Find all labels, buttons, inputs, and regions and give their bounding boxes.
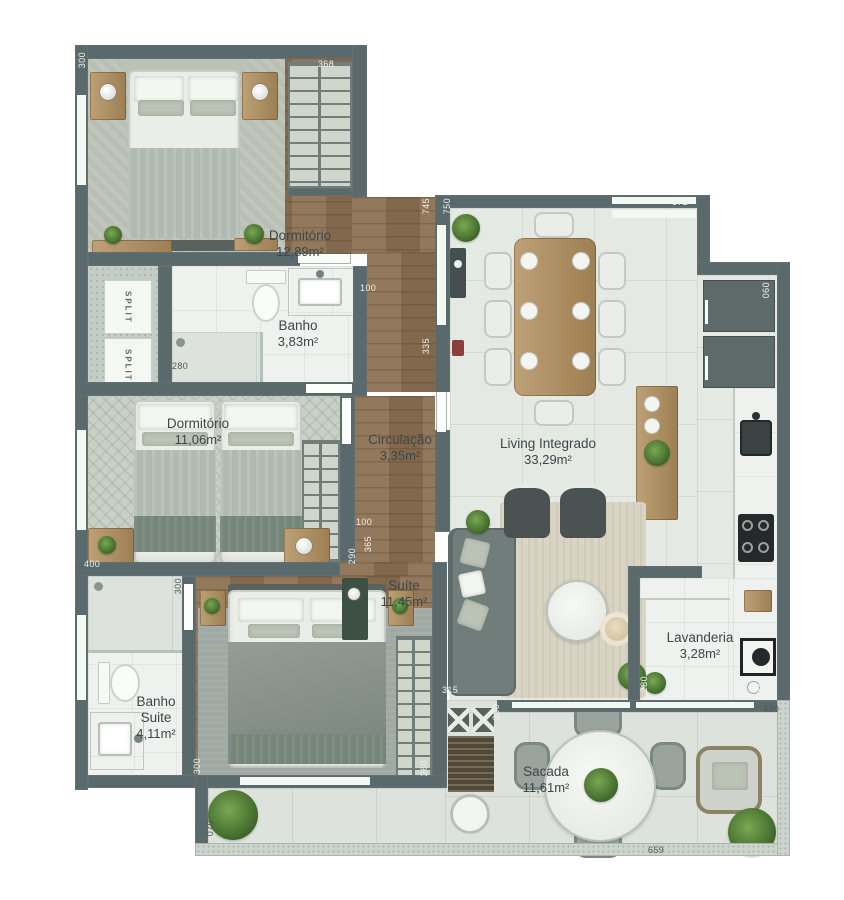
plant-icon xyxy=(104,226,122,244)
plant-icon xyxy=(392,598,408,614)
wall-laundry-west xyxy=(628,576,640,700)
sliding-door-balcony xyxy=(636,702,754,708)
side-stool xyxy=(450,794,490,834)
pillow-accent xyxy=(190,100,236,116)
dining-chair xyxy=(598,252,626,290)
toilet-icon xyxy=(252,284,280,322)
plate-icon xyxy=(572,252,590,270)
pillow-accent xyxy=(138,100,184,116)
armchair-cushion xyxy=(712,762,748,790)
wall-bedroom1-right xyxy=(352,45,367,197)
bowl-icon xyxy=(644,418,660,434)
folding-chair-icon xyxy=(448,708,469,732)
pillow xyxy=(238,598,304,622)
door-bathroom1 xyxy=(306,384,352,393)
plant-icon xyxy=(644,440,670,466)
burner-icon xyxy=(742,520,753,531)
plant-icon xyxy=(466,510,490,534)
plant-icon xyxy=(644,672,666,694)
plate-icon xyxy=(572,352,590,370)
door-suite-bathroom xyxy=(184,584,193,630)
door-bedroom1 xyxy=(298,254,350,263)
blanket-foot xyxy=(228,734,386,764)
split-label: SPLIT xyxy=(124,349,133,382)
wall-bathroom1-east xyxy=(353,266,367,392)
window-hall xyxy=(437,225,446,325)
burner-icon xyxy=(742,542,753,553)
window-bedroom2 xyxy=(77,430,86,530)
sink-icon xyxy=(298,278,342,306)
wall-wardrobe xyxy=(288,188,352,196)
plant-icon xyxy=(98,536,116,554)
toilet-tank xyxy=(98,662,110,704)
burner-icon xyxy=(758,520,769,531)
dining-chair xyxy=(484,252,512,290)
dining-chair xyxy=(484,300,512,338)
plant-icon xyxy=(452,214,480,242)
wall-bathroom1-west xyxy=(158,266,172,392)
window-bench xyxy=(612,210,696,218)
window-suite xyxy=(240,777,370,785)
plate-icon xyxy=(520,302,538,320)
wall-bedroom1-bottom xyxy=(88,252,300,266)
plate-icon xyxy=(520,252,538,270)
wall-hall-east-lower xyxy=(435,430,450,532)
blanket xyxy=(128,148,240,238)
sofa-pillow xyxy=(458,570,486,598)
shower-glass xyxy=(88,650,182,653)
shower-drain-icon xyxy=(94,582,103,591)
burner-icon xyxy=(758,542,769,553)
floor-hall-upper xyxy=(367,252,435,392)
floor-circulation xyxy=(355,396,435,562)
decor-icon xyxy=(452,340,464,356)
dining-chair xyxy=(534,400,574,426)
faucet-icon xyxy=(752,412,760,420)
wall-suite-east xyxy=(432,562,447,788)
sink-icon xyxy=(98,722,132,756)
wall-bedroom2-bottom xyxy=(75,562,340,576)
tall-cabinet xyxy=(703,336,775,388)
wall-laundry-top xyxy=(628,566,702,578)
plant-icon xyxy=(208,790,258,840)
toilet-icon xyxy=(110,664,140,702)
fridge-handle-icon xyxy=(705,300,708,324)
door-hall xyxy=(437,392,446,432)
wall-right xyxy=(777,262,790,702)
window-bedroom1 xyxy=(77,95,86,185)
blanket xyxy=(134,450,216,516)
split-unit: SPLIT xyxy=(104,280,152,334)
plant-icon xyxy=(584,768,618,802)
entry-cabinet xyxy=(450,248,466,298)
decor-icon xyxy=(454,260,462,268)
cabinet-handle-icon xyxy=(705,356,708,380)
wardrobe-rail xyxy=(318,62,321,188)
decor-icon xyxy=(348,588,360,600)
faucet-icon xyxy=(316,270,324,278)
dining-chair xyxy=(484,348,512,386)
wardrobe-rail xyxy=(412,636,415,784)
pillow xyxy=(224,404,298,430)
lamp-icon xyxy=(296,538,312,554)
plate-icon xyxy=(520,352,538,370)
toilet-tank xyxy=(246,270,286,284)
pillow-accent xyxy=(142,432,208,446)
laundry-counter xyxy=(640,578,730,600)
floor-plan-canvas: SPLIT SPLIT xyxy=(0,0,844,900)
railing-balcony-bottom xyxy=(195,843,790,856)
plant-icon xyxy=(244,224,264,244)
pillow xyxy=(134,76,184,102)
door-bedroom2 xyxy=(342,398,351,444)
blanket-foot xyxy=(134,516,216,552)
dining-chair xyxy=(534,212,574,238)
window-suite-bathroom xyxy=(77,615,86,700)
folding-chair-icon xyxy=(473,708,494,732)
dining-chair xyxy=(598,348,626,386)
kitchen-sink-icon xyxy=(740,420,772,456)
railing-balcony-right xyxy=(777,700,790,856)
wall-top xyxy=(75,45,367,59)
armchair xyxy=(560,484,606,538)
refrigerator xyxy=(703,280,775,332)
doormat xyxy=(448,736,494,792)
lamp-icon xyxy=(252,84,268,100)
bowl-icon xyxy=(644,396,660,412)
laundry-basket xyxy=(744,590,772,612)
pillow xyxy=(188,76,238,102)
window-living xyxy=(612,197,696,204)
shower-drain-icon xyxy=(176,338,185,347)
faucet-icon xyxy=(134,734,143,743)
pillow-accent xyxy=(248,624,300,638)
blanket xyxy=(220,450,302,516)
pillow xyxy=(138,404,212,430)
plate-icon xyxy=(572,302,590,320)
floor-suite-entry xyxy=(340,562,435,576)
plant-icon xyxy=(204,598,220,614)
dining-chair xyxy=(598,300,626,338)
drain-icon xyxy=(748,682,759,693)
floor-bedroom1-extension xyxy=(352,197,435,254)
split-label: SPLIT xyxy=(124,291,133,324)
lamp-icon xyxy=(100,84,116,100)
armchair xyxy=(504,484,550,538)
washer-door-icon xyxy=(752,648,770,666)
sliding-door-balcony xyxy=(512,702,630,708)
coffee-table xyxy=(546,580,608,642)
pillow-accent xyxy=(228,432,294,446)
